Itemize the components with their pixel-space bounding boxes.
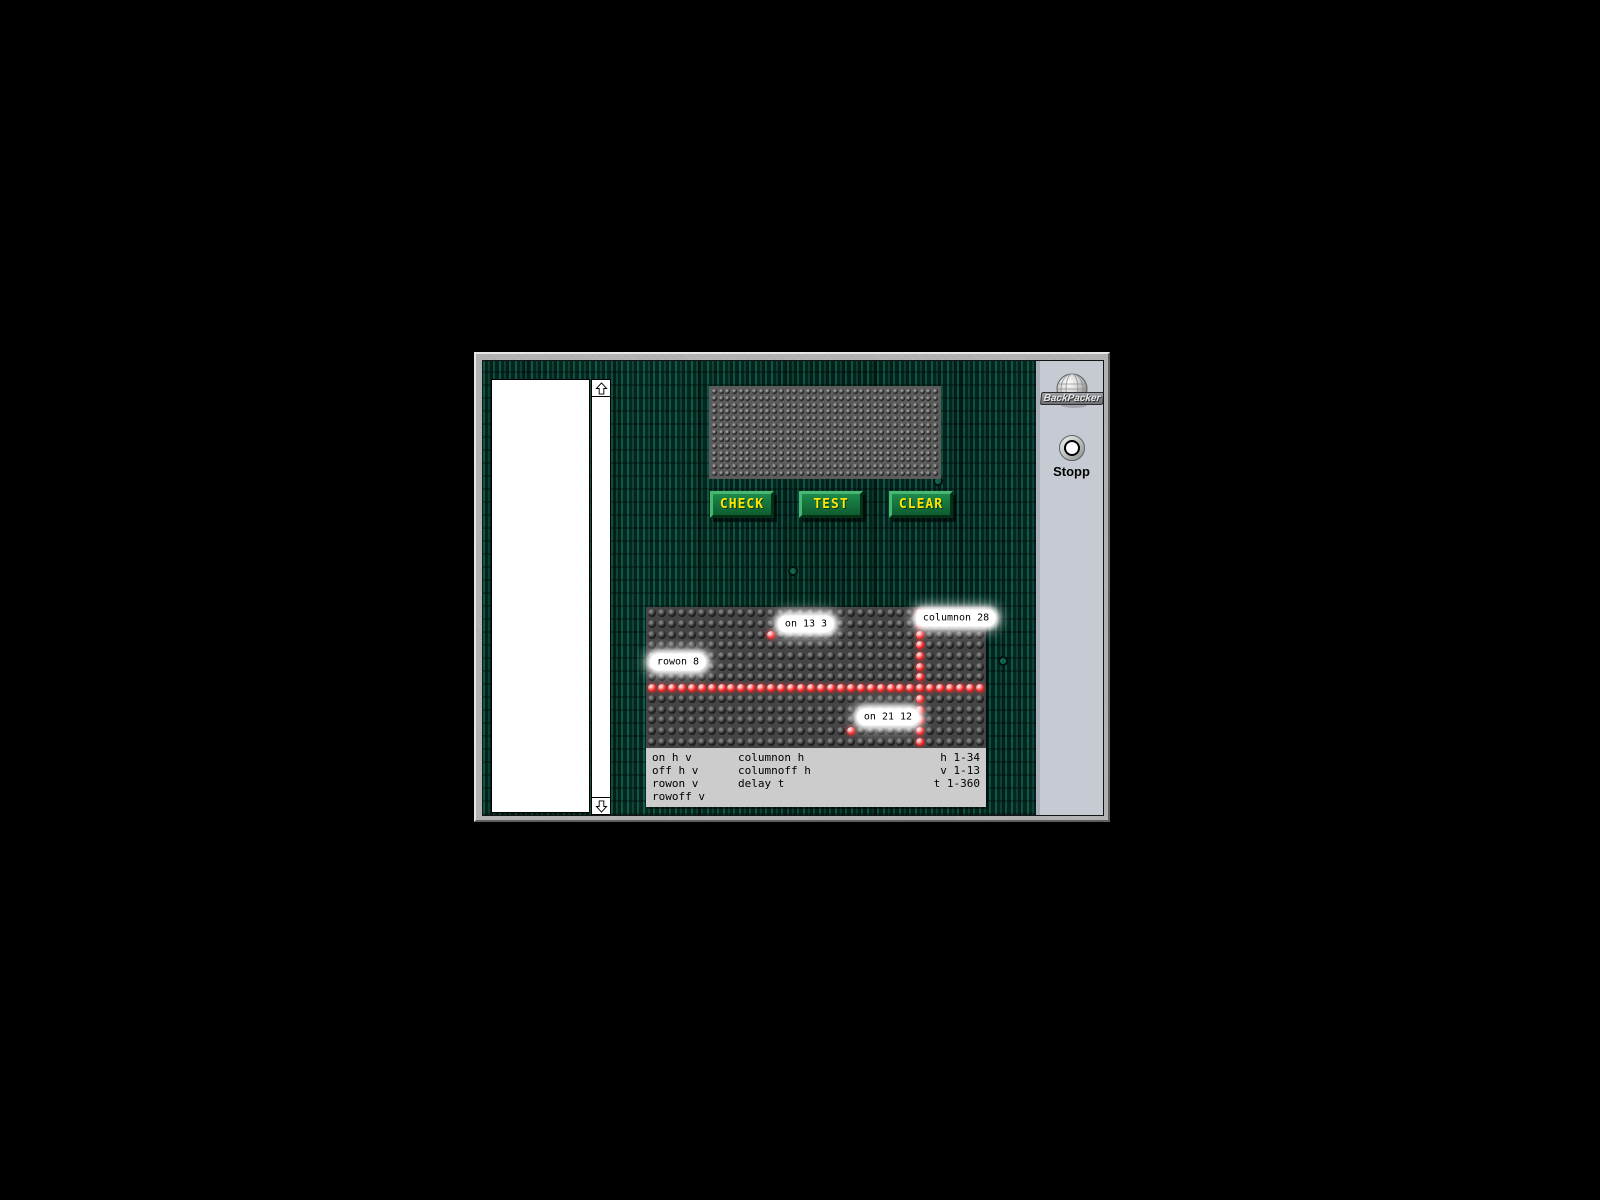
led-dot-off — [873, 471, 878, 476]
led-dot-off — [866, 444, 871, 449]
led-dot-off — [826, 423, 831, 428]
led-dot-off — [812, 464, 817, 469]
led-dot-off — [747, 695, 755, 703]
led-dot-off — [712, 409, 717, 414]
led-dot-off — [867, 738, 875, 746]
led-dot-off — [787, 695, 795, 703]
led-dot-off — [757, 738, 765, 746]
led-dot-off — [765, 416, 770, 421]
led-dot-off — [772, 457, 777, 462]
led-dot-off — [648, 738, 656, 746]
led-dot-off — [976, 652, 984, 660]
led-dot-off — [853, 396, 858, 401]
legend-entry: columnon h — [738, 751, 934, 764]
led-dot-off — [757, 673, 765, 681]
led-dot-off — [799, 457, 804, 462]
led-dot-off — [797, 716, 805, 724]
led-dot-off — [886, 423, 891, 428]
led-dot-off — [896, 631, 904, 639]
led-dot-off — [792, 423, 797, 428]
led-dot-off — [857, 663, 865, 671]
led-dot-off — [737, 641, 745, 649]
led-dot-on — [847, 727, 855, 735]
led-dot-off — [933, 409, 938, 414]
led-dot-off — [819, 444, 824, 449]
led-dot-off — [799, 437, 804, 442]
led-dot-off — [893, 471, 898, 476]
led-dot-off — [933, 444, 938, 449]
led-dot-off — [853, 471, 858, 476]
led-dot-off — [926, 727, 934, 735]
led-dot-off — [920, 403, 925, 408]
led-dot-off — [688, 716, 696, 724]
led-dot-off — [752, 464, 757, 469]
led-dot-off — [767, 716, 775, 724]
led-dot-off — [708, 706, 716, 714]
led-dot-off — [759, 451, 764, 456]
led-dot-off — [718, 641, 726, 649]
led-dot-off — [767, 663, 775, 671]
led-dot-off — [886, 389, 891, 394]
led-dot-off — [873, 444, 878, 449]
led-dot-off — [839, 457, 844, 462]
led-dot-off — [698, 695, 706, 703]
led-dot-off — [837, 727, 845, 735]
led-dot-off — [698, 738, 706, 746]
led-dot-off — [857, 620, 865, 628]
led-dot-off — [857, 652, 865, 660]
led-dot-off — [787, 727, 795, 735]
led-dot-off — [920, 464, 925, 469]
led-dot-off — [900, 437, 905, 442]
circuit-board-background: CHECK TEST CLEAR on 13 3columnon 28rowon… — [483, 361, 1036, 815]
led-dot-off — [712, 423, 717, 428]
led-dot-off — [886, 409, 891, 414]
led-dot-off — [779, 389, 784, 394]
test-button[interactable]: TEST — [799, 491, 863, 518]
led-dot-off — [779, 423, 784, 428]
led-dot-on — [887, 684, 895, 692]
led-dot-on — [956, 684, 964, 692]
arrow-down-icon — [595, 800, 608, 813]
led-dot-off — [933, 471, 938, 476]
led-dot-off — [837, 706, 845, 714]
stop-button-label: Stopp — [1053, 464, 1090, 479]
led-dot-off — [765, 409, 770, 414]
led-dot-off — [759, 471, 764, 476]
code-editor[interactable] — [491, 379, 590, 813]
led-dot-off — [913, 403, 918, 408]
led-dot-off — [812, 444, 817, 449]
led-dot-off — [747, 673, 755, 681]
clear-button[interactable]: CLEAR — [889, 491, 953, 518]
led-dot-off — [732, 396, 737, 401]
led-dot-off — [747, 641, 755, 649]
led-dot-off — [772, 389, 777, 394]
led-dot-off — [827, 738, 835, 746]
led-dot-off — [745, 416, 750, 421]
scroll-up-button[interactable] — [592, 380, 610, 397]
led-dot-off — [900, 457, 905, 462]
led-dot-off — [867, 727, 875, 735]
led-dot-off — [792, 444, 797, 449]
led-dot-off — [887, 738, 895, 746]
applet-window: CHECK TEST CLEAR on 13 3columnon 28rowon… — [474, 352, 1110, 822]
led-dot-off — [727, 631, 735, 639]
led-dot-off — [896, 620, 904, 628]
led-dot-off — [745, 464, 750, 469]
led-dot-off — [886, 396, 891, 401]
led-dot-off — [725, 464, 730, 469]
led-dot-off — [727, 641, 735, 649]
led-dot-on — [767, 631, 775, 639]
led-dot-off — [737, 727, 745, 735]
led-dot-off — [926, 451, 931, 456]
led-dot-off — [648, 716, 656, 724]
led-dot-off — [737, 652, 745, 660]
led-dot-off — [873, 451, 878, 456]
led-dot-off — [966, 673, 974, 681]
led-dot-off — [896, 609, 904, 617]
led-dot-off — [893, 389, 898, 394]
led-dot-off — [936, 727, 944, 735]
led-dot-off — [678, 641, 686, 649]
led-dot-off — [933, 464, 938, 469]
led-dot-off — [867, 663, 875, 671]
led-dot-off — [906, 620, 914, 628]
led-dot-off — [859, 430, 864, 435]
led-dot-off — [966, 695, 974, 703]
led-dot-off — [757, 641, 765, 649]
led-dot-off — [837, 609, 845, 617]
led-dot-off — [893, 451, 898, 456]
led-dot-off — [732, 409, 737, 414]
led-dot-off — [926, 437, 931, 442]
led-dot-off — [966, 727, 974, 735]
led-dot-off — [757, 631, 765, 639]
led-dot-off — [725, 437, 730, 442]
led-dot-off — [859, 416, 864, 421]
led-dot-off — [906, 423, 911, 428]
led-dot-off — [786, 430, 791, 435]
led-dot-off — [772, 444, 777, 449]
led-dot-off — [833, 403, 838, 408]
led-dot-off — [906, 416, 911, 421]
led-dot-off — [933, 403, 938, 408]
led-dot-off — [879, 416, 884, 421]
led-dot-off — [747, 663, 755, 671]
annotation-cloud: on 21 12 — [857, 709, 919, 726]
led-dot-off — [678, 716, 686, 724]
legend-entry: off h v — [652, 764, 738, 777]
led-dot-off — [886, 451, 891, 456]
led-dot-off — [933, 416, 938, 421]
led-dot-off — [718, 620, 726, 628]
led-dot-off — [887, 641, 895, 649]
led-dot-off — [853, 464, 858, 469]
led-dot-off — [658, 641, 666, 649]
led-dot-off — [837, 641, 845, 649]
led-dot-off — [886, 430, 891, 435]
led-dot-off — [799, 396, 804, 401]
led-dot-off — [926, 716, 934, 724]
led-dot-off — [777, 641, 785, 649]
led-dot-off — [817, 641, 825, 649]
led-dot-off — [817, 727, 825, 735]
led-dot-off — [877, 695, 885, 703]
led-dot-off — [956, 706, 964, 714]
led-dot-on — [916, 673, 924, 681]
led-dot-off — [708, 738, 716, 746]
led-output-display — [709, 386, 941, 479]
led-dot-off — [807, 706, 815, 714]
led-dot-off — [817, 716, 825, 724]
led-dot-off — [718, 631, 726, 639]
led-dot-off — [817, 652, 825, 660]
led-dot-off — [712, 416, 717, 421]
led-dot-on — [678, 684, 686, 692]
led-dot-off — [839, 396, 844, 401]
led-dot-off — [752, 471, 757, 476]
led-dot-off — [847, 641, 855, 649]
led-dot-off — [708, 716, 716, 724]
led-dot-off — [956, 738, 964, 746]
led-dot-off — [859, 403, 864, 408]
led-dot-off — [936, 631, 944, 639]
led-dot-off — [853, 409, 858, 414]
led-dot-off — [817, 738, 825, 746]
led-dot-off — [698, 641, 706, 649]
led-dot-off — [708, 652, 716, 660]
led-dot-off — [879, 423, 884, 428]
led-dot-off — [779, 437, 784, 442]
led-dot-off — [926, 403, 931, 408]
led-dot-off — [779, 451, 784, 456]
led-dot-off — [759, 437, 764, 442]
led-dot-off — [747, 631, 755, 639]
led-dot-off — [799, 416, 804, 421]
led-dot-off — [678, 620, 686, 628]
led-dot-off — [708, 631, 716, 639]
led-dot-off — [767, 641, 775, 649]
led-dot-off — [896, 673, 904, 681]
led-dot-off — [765, 423, 770, 428]
led-dot-off — [906, 464, 911, 469]
led-dot-off — [648, 695, 656, 703]
led-dot-off — [658, 727, 666, 735]
led-dot-off — [893, 396, 898, 401]
led-dot-off — [757, 620, 765, 628]
led-dot-off — [757, 727, 765, 735]
reference-panel: on 13 3columnon 28rowon 8on 21 12 on h v… — [646, 607, 986, 807]
led-dot-off — [827, 716, 835, 724]
led-dot-off — [727, 663, 735, 671]
led-dot-off — [926, 706, 934, 714]
led-dot-off — [765, 403, 770, 408]
led-dot-off — [847, 620, 855, 628]
led-dot-off — [920, 416, 925, 421]
logo: BackPacker — [1041, 371, 1103, 421]
led-dot-off — [745, 389, 750, 394]
led-dot-on — [976, 684, 984, 692]
led-dot-off — [966, 706, 974, 714]
led-dot-off — [752, 444, 757, 449]
led-dot-off — [976, 738, 984, 746]
led-dot-off — [752, 423, 757, 428]
led-dot-off — [777, 738, 785, 746]
led-dot-off — [877, 652, 885, 660]
check-button[interactable]: CHECK — [710, 491, 774, 518]
led-dot-off — [797, 706, 805, 714]
led-dot-off — [718, 695, 726, 703]
led-dot-off — [792, 409, 797, 414]
led-dot-off — [933, 437, 938, 442]
led-dot-off — [759, 396, 764, 401]
led-dot-off — [926, 631, 934, 639]
led-dot-off — [745, 457, 750, 462]
led-dot-off — [725, 403, 730, 408]
led-dot-off — [827, 641, 835, 649]
led-dot-off — [913, 416, 918, 421]
led-dot-off — [826, 437, 831, 442]
led-dot-off — [837, 663, 845, 671]
led-dot-off — [718, 738, 726, 746]
led-dot-off — [759, 430, 764, 435]
led-dot-off — [920, 430, 925, 435]
led-dot-off — [857, 609, 865, 617]
led-dot-on — [817, 684, 825, 692]
led-dot-off — [857, 673, 865, 681]
led-dot-off — [792, 451, 797, 456]
led-dot-off — [668, 673, 676, 681]
scroll-down-button[interactable] — [592, 797, 610, 814]
led-dot-off — [900, 444, 905, 449]
led-dot-off — [745, 403, 750, 408]
led-dot-off — [900, 430, 905, 435]
led-dot-off — [887, 663, 895, 671]
led-dot-off — [759, 457, 764, 462]
led-dot-off — [833, 396, 838, 401]
led-dot-off — [867, 631, 875, 639]
led-dot-off — [759, 389, 764, 394]
led-dot-off — [786, 396, 791, 401]
led-dot-off — [906, 409, 911, 414]
led-dot-off — [678, 706, 686, 714]
led-dot-off — [846, 389, 851, 394]
led-dot-off — [896, 738, 904, 746]
led-dot-off — [739, 430, 744, 435]
led-dot-off — [799, 451, 804, 456]
led-dot-off — [920, 444, 925, 449]
led-dot-off — [719, 457, 724, 462]
led-dot-off — [886, 416, 891, 421]
led-dot-on — [718, 684, 726, 692]
led-dot-off — [745, 471, 750, 476]
led-dot-off — [896, 652, 904, 660]
led-dot-off — [966, 663, 974, 671]
led-dot-off — [956, 673, 964, 681]
led-dot-off — [837, 716, 845, 724]
led-dot-off — [936, 641, 944, 649]
led-dot-off — [819, 389, 824, 394]
led-dot-off — [853, 403, 858, 408]
led-dot-off — [757, 663, 765, 671]
led-dot-off — [658, 738, 666, 746]
led-dot-off — [807, 652, 815, 660]
editor-scrollbar[interactable] — [591, 379, 611, 815]
led-dot-off — [648, 706, 656, 714]
legend-column-1: on h v off h v rowon v rowoff v — [652, 751, 738, 803]
led-dot-off — [896, 727, 904, 735]
led-dot-off — [812, 457, 817, 462]
led-dot-off — [926, 430, 931, 435]
led-dot-off — [786, 423, 791, 428]
led-dot-off — [806, 444, 811, 449]
led-dot-off — [946, 738, 954, 746]
led-dot-off — [966, 716, 974, 724]
led-dot-off — [747, 738, 755, 746]
led-dot-on — [916, 695, 924, 703]
led-dot-off — [772, 471, 777, 476]
led-dot-off — [718, 652, 726, 660]
led-dot-off — [737, 706, 745, 714]
led-dot-off — [859, 437, 864, 442]
led-dot-off — [926, 695, 934, 703]
led-dot-off — [725, 416, 730, 421]
stop-button[interactable] — [1059, 435, 1085, 461]
led-dot-off — [879, 471, 884, 476]
led-dot-off — [906, 471, 911, 476]
led-dot-off — [658, 716, 666, 724]
led-dot-off — [819, 437, 824, 442]
led-dot-off — [792, 464, 797, 469]
legend-range: t 1-360 — [934, 777, 980, 790]
led-dot-off — [946, 727, 954, 735]
led-dot-off — [817, 673, 825, 681]
led-dot-off — [857, 738, 865, 746]
led-dot-off — [648, 620, 656, 628]
led-dot-off — [839, 389, 844, 394]
led-dot-off — [732, 451, 737, 456]
led-dot-off — [772, 437, 777, 442]
led-dot-off — [739, 457, 744, 462]
led-dot-off — [747, 706, 755, 714]
led-dot-off — [886, 437, 891, 442]
led-dot-off — [787, 641, 795, 649]
led-dot-off — [668, 620, 676, 628]
led-dot-off — [739, 444, 744, 449]
led-dot-off — [799, 471, 804, 476]
led-dot-off — [765, 396, 770, 401]
led-dot-off — [900, 396, 905, 401]
led-dot-off — [853, 430, 858, 435]
led-dot-off — [786, 464, 791, 469]
led-dot-off — [767, 620, 775, 628]
led-dot-off — [765, 437, 770, 442]
led-dot-off — [900, 451, 905, 456]
led-dot-off — [933, 430, 938, 435]
led-dot-off — [712, 457, 717, 462]
led-dot-off — [900, 389, 905, 394]
led-dot-off — [833, 471, 838, 476]
led-dot-off — [867, 652, 875, 660]
led-dot-off — [936, 716, 944, 724]
led-dot-off — [747, 620, 755, 628]
led-dot-off — [786, 471, 791, 476]
led-dot-off — [853, 423, 858, 428]
led-dot-off — [799, 464, 804, 469]
led-dot-off — [913, 409, 918, 414]
